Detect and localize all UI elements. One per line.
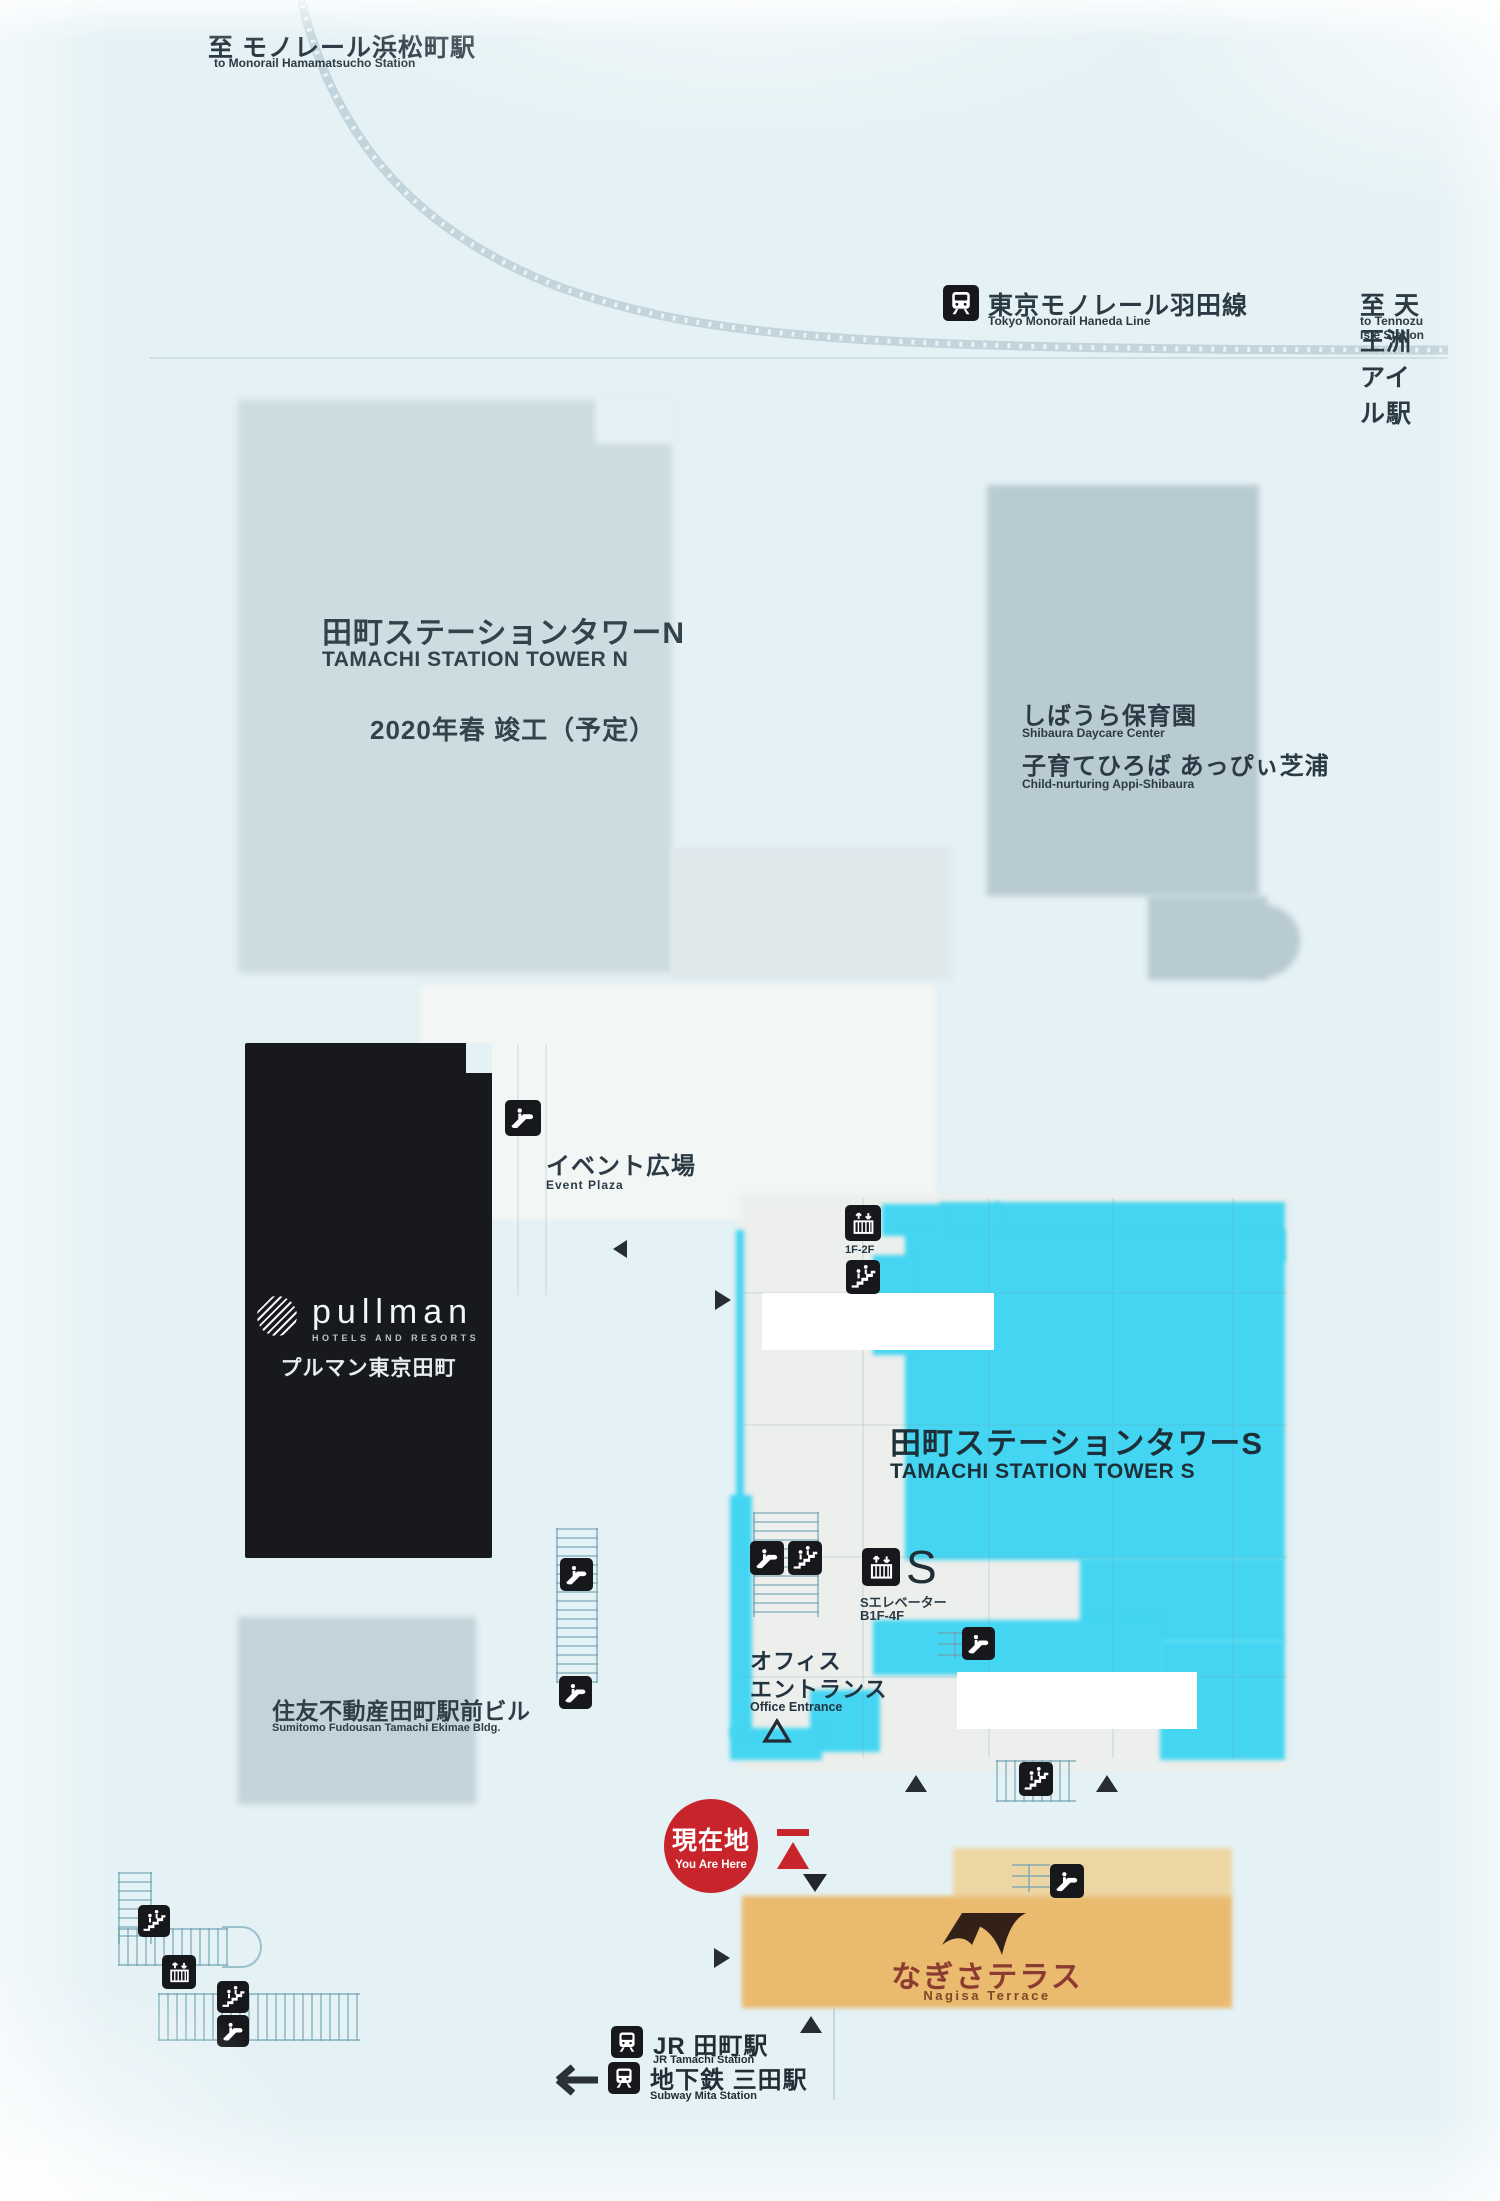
subway-station-en: Subway Mita Station (650, 2090, 757, 2102)
path-line (833, 2008, 835, 2100)
tennozu-destination-en: to Tennozu Isle Station (1360, 314, 1430, 342)
structure-grid (938, 1632, 964, 1658)
tower-s-cyan (736, 1230, 744, 1560)
stairs-icon (788, 1541, 822, 1575)
escalator-icon (1050, 1864, 1084, 1898)
left-triangle-icon (613, 1240, 627, 1258)
daycare-sub-en: Child-nurturing Appi-Shibaura (1022, 777, 1194, 791)
escalator-icon (559, 1676, 592, 1709)
event-plaza-en: Event Plaza (546, 1178, 624, 1192)
tower-s-cyan (873, 1620, 1163, 1675)
pullman-logo-icon (257, 1296, 297, 1336)
pedestrian-deck (158, 1993, 360, 2041)
elevator-floor-range: 1F-2F (845, 1244, 874, 1256)
elevator-icon (862, 1548, 900, 1586)
train-icon (943, 285, 979, 321)
s-elevator-floors: B1F-4F (860, 1608, 904, 1623)
grid-line (1232, 1198, 1234, 1758)
sumitomo-name-en: Sumitomo Fudousan Tamachi Ekimae Bldg. (272, 1722, 500, 1734)
you-are-here-marker: 現在地 You Are Here (664, 1799, 758, 1893)
tower-n-building (238, 400, 672, 973)
event-plaza-area (420, 985, 935, 1220)
tower-n-notch (595, 396, 675, 444)
station-area-map: 至 モノレール浜松町駅 to Monorail Hamamatsucho Sta… (0, 0, 1500, 2201)
escalator-icon (217, 2015, 249, 2047)
right-triangle-icon (714, 1948, 730, 1968)
train-icon (611, 2026, 643, 2058)
daycare-building (987, 485, 1259, 896)
escalator-icon (505, 1100, 541, 1136)
pullman-notch (466, 1043, 492, 1073)
escalator-icon (750, 1541, 784, 1575)
escalator-icon (560, 1558, 593, 1591)
event-plaza-ja: イベント広場 (546, 1146, 696, 1181)
up-triangle-icon (1096, 1775, 1118, 1792)
right-triangle-icon (715, 1290, 731, 1310)
elevator-icon (845, 1205, 881, 1241)
hamamatsucho-destination-en: to Monorail Hamamatsucho Station (214, 56, 415, 70)
stair-landing (222, 1926, 262, 1968)
left-arrow-icon (546, 2062, 600, 2098)
daycare-round-structure (1228, 905, 1300, 977)
blanked-label-box (957, 1672, 1197, 1729)
you-are-here-bar (777, 1829, 809, 1836)
grid-line (742, 1556, 1286, 1558)
tennozu-destination-ja: 至 天王洲アイル駅 (1360, 286, 1430, 430)
office-entrance-en: Office Entrance (750, 1700, 842, 1714)
train-icon (608, 2062, 640, 2094)
elevator-icon (162, 1955, 196, 1989)
tower-s-name-ja: 田町ステーションタワーS (890, 1418, 1263, 1463)
sumitomo-name-ja: 住友不動産田町駅前ビル (272, 1692, 531, 1726)
red-up-triangle-icon (777, 1842, 809, 1869)
grid-line (517, 1045, 519, 1295)
tower-s-cyan (905, 1230, 1285, 1560)
escalator-icon (962, 1627, 995, 1660)
monorail-line-en: Tokyo Monorail Haneda Line (988, 314, 1150, 328)
stairs-icon (1019, 1762, 1053, 1796)
up-triangle-icon (800, 2016, 822, 2033)
stairs-icon (846, 1260, 880, 1294)
pullman-brand-sub: HOTELS AND RESORTS (312, 1333, 479, 1343)
tower-n-name-en: TAMACHI STATION TOWER N (322, 648, 628, 672)
tower-s-name-en: TAMACHI STATION TOWER S (890, 1460, 1195, 1484)
down-triangle-icon (803, 1874, 827, 1892)
pullman-logo: pullman HOTELS AND RESORTS (257, 1296, 479, 1343)
tower-n-annex (672, 847, 952, 980)
pullman-brand: pullman (312, 1296, 479, 1328)
tower-n-name-ja: 田町ステーションタワーN (322, 608, 685, 652)
s-elevator-letter: S (906, 1540, 937, 1594)
blanked-label-box (762, 1293, 994, 1350)
you-are-here-en: You Are Here (675, 1859, 747, 1871)
entrance-triangle-icon (762, 1718, 792, 1744)
stairs-icon (217, 1981, 249, 2013)
south-path-structure (556, 1528, 598, 1683)
nagisa-name-en: Nagisa Terrace (742, 1988, 1232, 2003)
structure-grid (1012, 1864, 1050, 1892)
up-triangle-icon (905, 1775, 927, 1792)
tower-n-completion: 2020年春 竣工（予定） (370, 710, 656, 747)
you-are-here-ja: 現在地 (672, 1821, 750, 1857)
stairs-icon (138, 1905, 170, 1937)
daycare-sub-ja: 子育てひろば あっぴぃ芝浦 (1022, 746, 1330, 781)
daycare-name-en: Shibaura Daycare Center (1022, 726, 1165, 740)
nagisa-logo (938, 1905, 1030, 1957)
pullman-name-ja: プルマン東京田町 (245, 1352, 492, 1382)
nagisa-upper-deck (953, 1848, 1232, 1898)
